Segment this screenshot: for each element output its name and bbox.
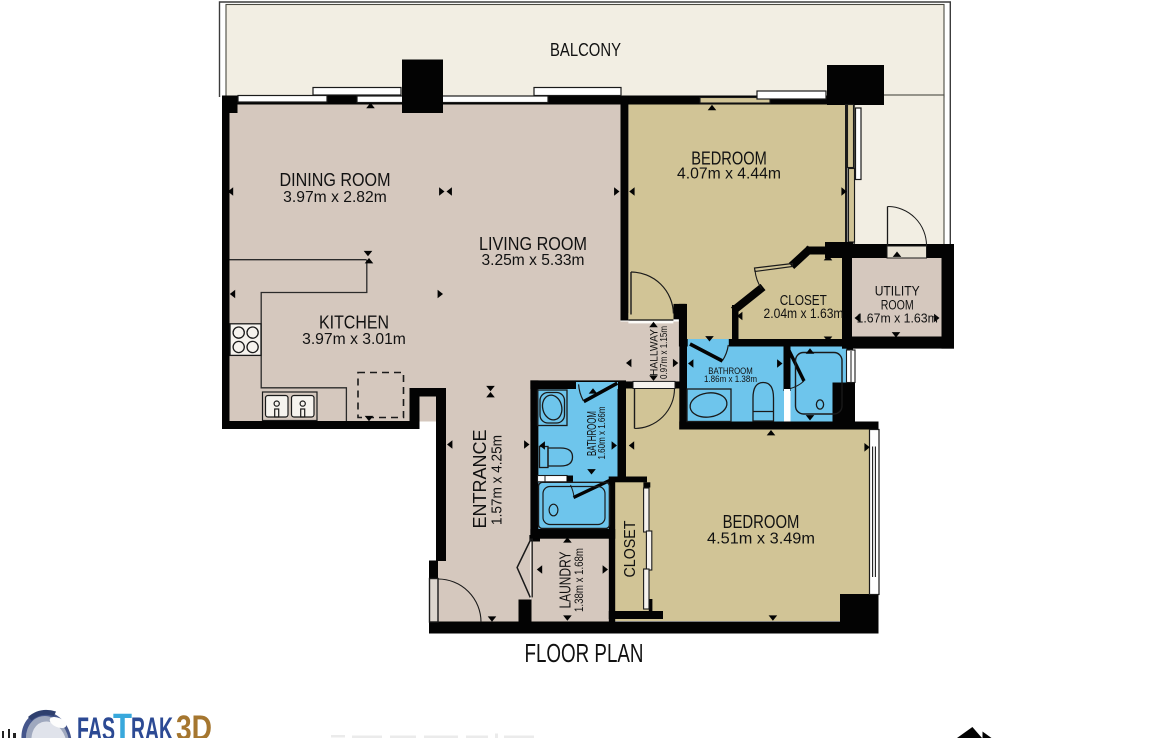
- svg-text:LIVING ROOM: LIVING ROOM: [479, 233, 587, 254]
- svg-text:1.67m x 1.63m: 1.67m x 1.63m: [857, 312, 938, 326]
- svg-text:CLOSET: CLOSET: [622, 520, 639, 577]
- svg-text:FLOOR PLAN: FLOOR PLAN: [525, 638, 644, 668]
- svg-text:4.51m x 3.49m: 4.51m x 3.49m: [707, 531, 815, 548]
- svg-text:1.38m x 1.68m: 1.38m x 1.68m: [572, 548, 586, 612]
- svg-text:3.97m x 2.82m: 3.97m x 2.82m: [283, 189, 387, 206]
- svg-text:RAK: RAK: [131, 711, 173, 738]
- svg-text:1.60m x 1.66m: 1.60m x 1.66m: [597, 407, 608, 460]
- svg-text:3.25m x 5.33m: 3.25m x 5.33m: [482, 252, 585, 269]
- svg-text:2.04m x 1.63m: 2.04m x 1.63m: [764, 306, 844, 321]
- svg-text:ROOM: ROOM: [881, 298, 914, 313]
- svg-text:BEDROOM: BEDROOM: [723, 511, 800, 532]
- svg-text:UTILITY: UTILITY: [875, 284, 920, 299]
- svg-text:BALCONY: BALCONY: [550, 39, 621, 60]
- svg-text:KITCHEN: KITCHEN: [319, 312, 389, 333]
- svg-text:4.07m x 4.44m: 4.07m x 4.44m: [677, 166, 781, 183]
- svg-text:3.97m x 3.01m: 3.97m x 3.01m: [302, 331, 406, 348]
- svg-text:DINING ROOM: DINING ROOM: [280, 169, 391, 190]
- svg-text:0.97m x 1.15m: 0.97m x 1.15m: [659, 326, 670, 379]
- svg-text:1.57m x 4.25m: 1.57m x 4.25m: [490, 435, 506, 525]
- svg-text:1.86m x 1.38m: 1.86m x 1.38m: [704, 374, 757, 384]
- svg-text:T: T: [113, 707, 132, 738]
- svg-text:ENTRANCE: ENTRANCE: [469, 430, 490, 529]
- svg-text:FAS: FAS: [77, 711, 115, 738]
- svg-text:3D: 3D: [176, 709, 212, 738]
